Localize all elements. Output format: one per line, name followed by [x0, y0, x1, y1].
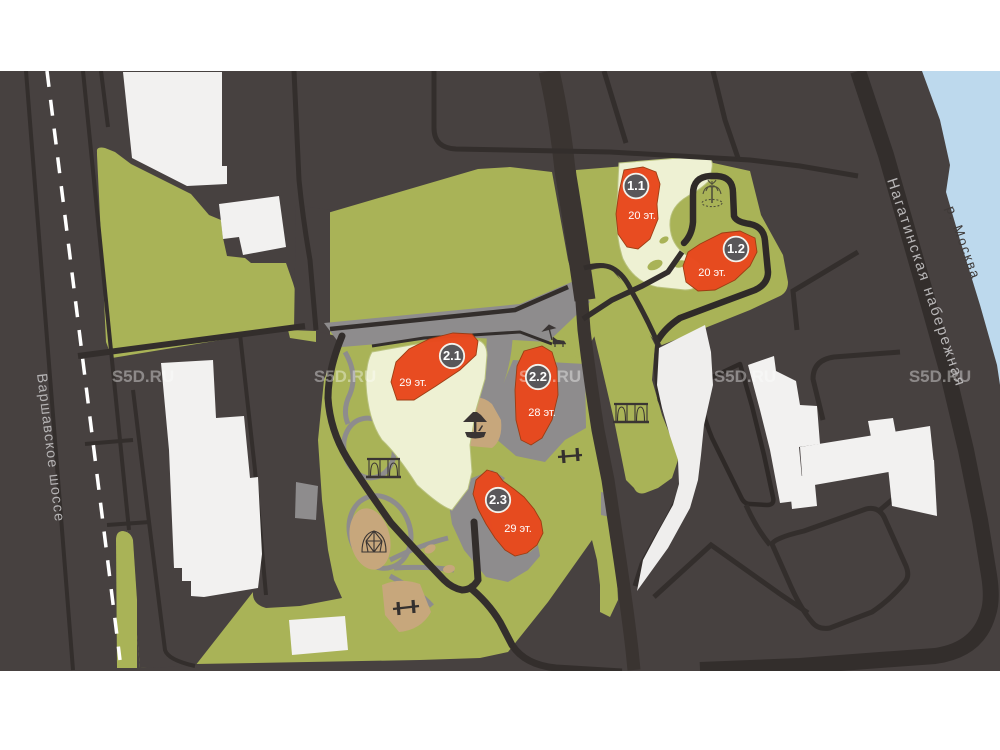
svg-text:20 эт.: 20 эт. [698, 267, 726, 279]
svg-text:29 эт.: 29 эт. [504, 523, 532, 535]
svg-text:2.3: 2.3 [489, 492, 507, 507]
svg-text:2.2: 2.2 [529, 369, 547, 384]
svg-text:1.2: 1.2 [727, 241, 745, 256]
svg-text:28 эт.: 28 эт. [528, 407, 556, 419]
svg-text:29 эт.: 29 эт. [399, 377, 427, 389]
svg-text:S5D.RU: S5D.RU [112, 367, 174, 386]
svg-text:1.1: 1.1 [627, 178, 645, 193]
svg-text:S5D.RU: S5D.RU [714, 367, 776, 386]
svg-text:2.1: 2.1 [443, 348, 461, 363]
svg-text:20 эт.: 20 эт. [628, 210, 656, 222]
svg-text:S5D.RU: S5D.RU [314, 367, 376, 386]
